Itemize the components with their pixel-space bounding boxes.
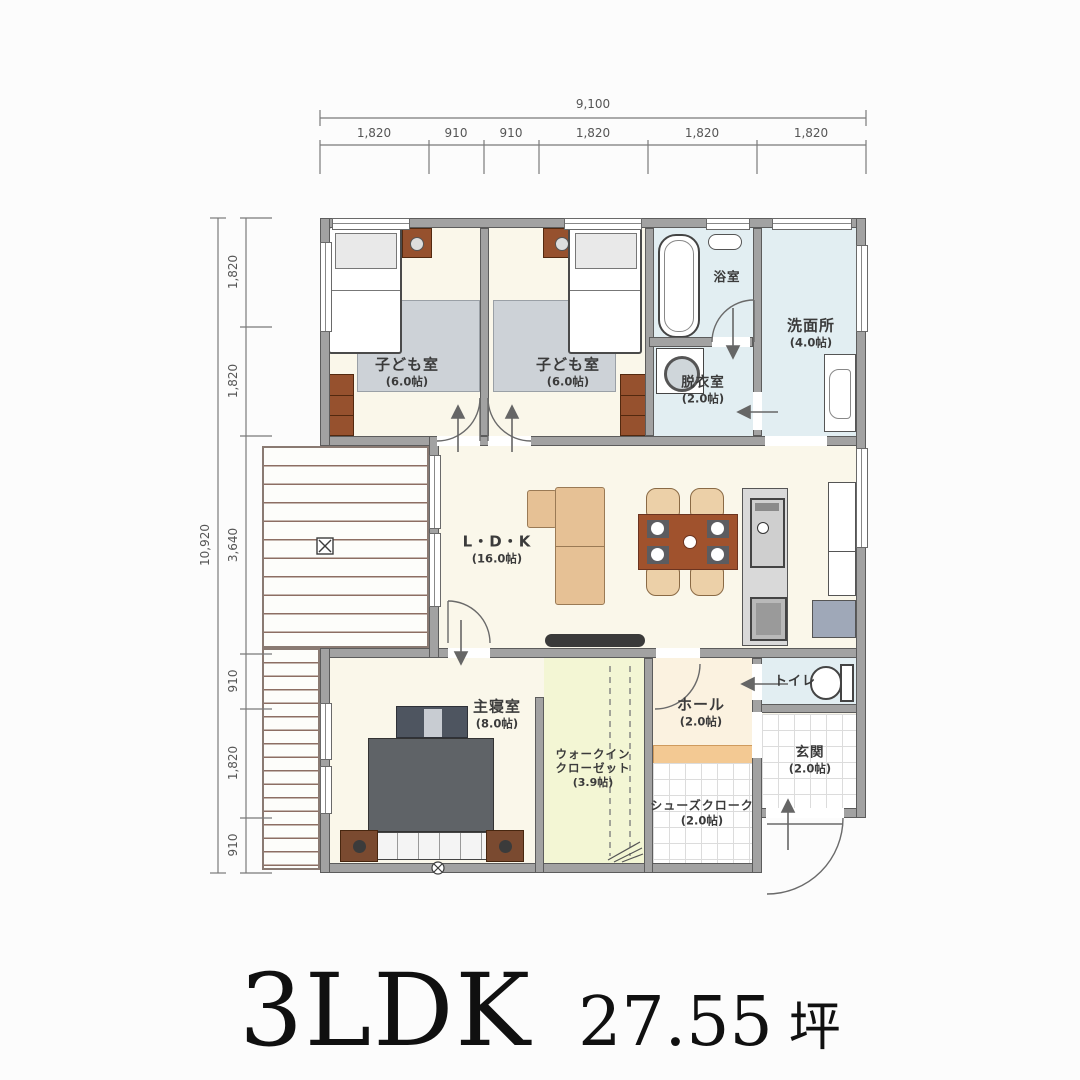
outdoor-tap-symbol [432,862,444,874]
master-bedroom-label: 主寝室 (8.0帖) [473,697,521,730]
plan-type: 3LDK [239,952,532,1069]
dim-top-seg-6: 1,820 [794,126,828,140]
walk-in-closet-label: ウォークイン クローゼット (3.9帖) [556,747,631,790]
dressing-room-label: 脱衣室 (2.0帖) [681,374,725,405]
kids-room-1-label: 子ども室 (6.0帖) [375,355,439,388]
wic-hatch-marks [608,842,643,862]
floorplan-canvas: 9,100 1,820 910 910 1,820 1,820 1,820 10… [0,0,1080,1080]
plan-title: 3LDK 27.55 坪 [0,952,1080,1069]
dim-top-seg-1: 1,820 [357,126,391,140]
faucet-symbol [317,538,333,554]
ldk-label: L・D・K (16.0帖) [463,532,532,565]
dim-left-seg-5: 1,820 [226,746,240,780]
dim-top-seg-4: 1,820 [576,126,610,140]
plan-area-value: 27.55 [578,983,773,1062]
hall-label: ホール (2.0帖) [677,695,725,728]
bathroom-label: 浴室 [713,269,740,285]
washroom-label: 洗面所 (4.0帖) [787,316,835,349]
dim-left-seg-2: 1,820 [226,364,240,398]
kids-room-2-label: 子ども室 (6.0帖) [536,355,600,388]
dim-top-total: 9,100 [576,97,610,111]
dim-left-seg-6: 910 [226,834,240,857]
dim-left-seg-4: 910 [226,670,240,693]
toilet-label: トイレ [774,674,816,690]
dim-left-seg-1: 1,820 [226,255,240,289]
dimension-lines [210,110,866,873]
door-arcs [437,300,843,894]
dim-left-seg-3: 3,640 [226,528,240,562]
plan-area-unit: 坪 [789,985,841,1060]
dim-top-seg-5: 1,820 [685,126,719,140]
plan-annotations [0,0,1080,1080]
dim-left-total: 10,920 [198,524,212,566]
dim-top-seg-3: 910 [500,126,523,140]
shoe-closet-label: シューズクローク (2.0帖) [650,798,753,827]
dim-top-seg-2: 910 [445,126,468,140]
entrance-label: 玄関 (2.0帖) [789,744,831,775]
